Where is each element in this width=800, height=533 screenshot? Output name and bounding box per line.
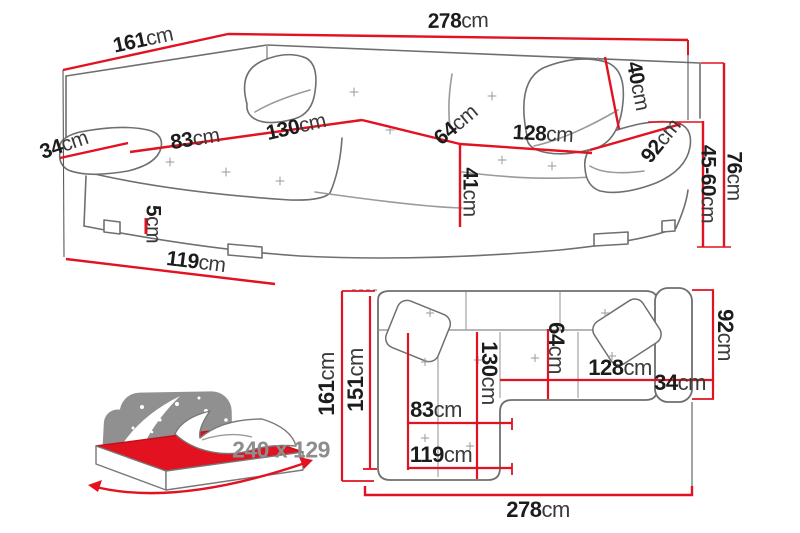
dim-plan-chaise-length: 130cm — [478, 341, 500, 405]
dim-perspective-total-height: 76cm — [724, 151, 745, 200]
dim-perspective-armrest-height-range: 45-60cm — [698, 145, 719, 223]
plan-sofa-drawing — [352, 288, 692, 480]
dim-perspective-total-width: 278cm — [428, 10, 489, 32]
dim-perspective-seat-height: 41cm — [460, 167, 481, 216]
dim-plan-seat-width: 128cm — [588, 357, 652, 379]
dim-plan-armrest-depth: 92cm — [714, 309, 736, 361]
sleeping-area-dimensions-label: 240 x 129 — [232, 439, 330, 462]
dim-plan-depth-inner: 151cm — [345, 348, 367, 412]
dim-perspective-seat-front-width: 128cm — [512, 122, 574, 146]
dim-plan-armrest-width: 34cm — [654, 372, 706, 394]
dim-perspective-leg-height: 5cm — [143, 205, 164, 243]
dim-plan-chaise-outer-length: 119cm — [410, 444, 472, 466]
dim-plan-depth-total: 161cm — [316, 352, 338, 416]
tuft-marks — [166, 88, 556, 185]
dim-plan-total-width: 278cm — [506, 499, 570, 521]
dim-plan-chaise-seat-width: 83cm — [410, 399, 462, 421]
diagram-artwork — [0, 0, 800, 533]
dimension-diagram: 161cm 278cm 34cm 83cm 130cm 64cm 40cm 12… — [0, 0, 800, 533]
dim-plan-seat-depth: 64cm — [545, 322, 567, 374]
